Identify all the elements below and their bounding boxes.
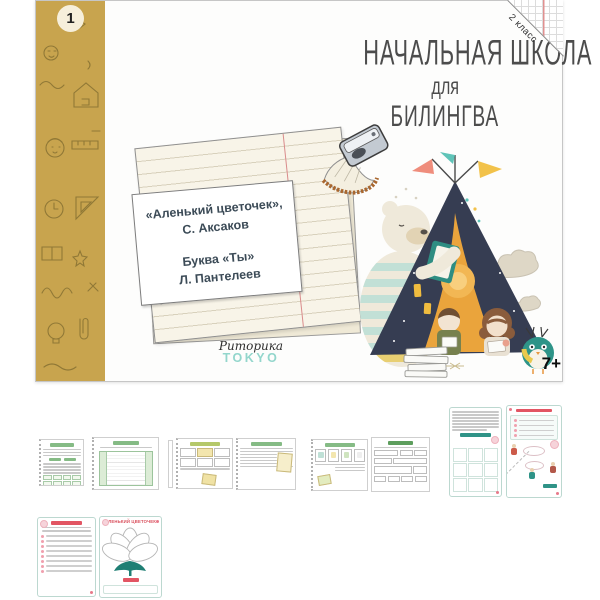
works-card: «Аленький цветочек», С. Аксаков Буква «Т… xyxy=(131,180,302,306)
product-gallery: 1 НАЧАЛЬНАЯ ШКОЛА для БИЛИНГВА 2 класс xyxy=(0,0,600,600)
publisher-logo: Риторика TOKYO xyxy=(201,340,301,365)
preview-page xyxy=(92,437,159,490)
doodle-pattern-icon xyxy=(36,1,105,381)
flower-page-title: АЛЕНЬКИЙ ЦВЕТОЧЕК xyxy=(105,519,157,524)
preview-page xyxy=(176,438,233,489)
preview-page xyxy=(371,437,430,492)
preview-page xyxy=(37,517,96,597)
character-icon xyxy=(550,462,556,473)
preview-page-flower: АЛЕНЬКИЙ ЦВЕТОЧЕК xyxy=(99,516,162,598)
title-line-3: БИЛИНГВА xyxy=(391,100,499,135)
cover-spine: 1 xyxy=(36,1,105,381)
grade-corner-fold-icon: 2 класс xyxy=(508,0,563,55)
volume-badge: 1 xyxy=(57,5,84,32)
flags-icon xyxy=(412,152,502,183)
girl-reading-icon xyxy=(479,308,515,356)
spark-icon xyxy=(446,363,464,369)
preview-page xyxy=(449,407,502,497)
title-line-2: для xyxy=(431,75,459,101)
character-icon xyxy=(511,444,517,455)
flower-diagram-icon xyxy=(100,525,161,577)
preview-page xyxy=(39,439,84,486)
preview-page xyxy=(506,405,562,498)
preview-page-edge xyxy=(168,440,173,488)
book-cover-image: 1 НАЧАЛЬНАЯ ШКОЛА для БИЛИНГВА 2 класс xyxy=(35,0,563,382)
preview-page xyxy=(236,438,296,490)
cover-illustration xyxy=(354,151,566,383)
publisher-brand: TOKYO xyxy=(201,352,301,365)
flower-page-label xyxy=(123,578,139,582)
preview-page xyxy=(311,439,368,491)
book-stack-icon xyxy=(404,347,448,377)
age-rating-badge: 7+ xyxy=(531,354,561,374)
answer-box xyxy=(103,585,158,594)
